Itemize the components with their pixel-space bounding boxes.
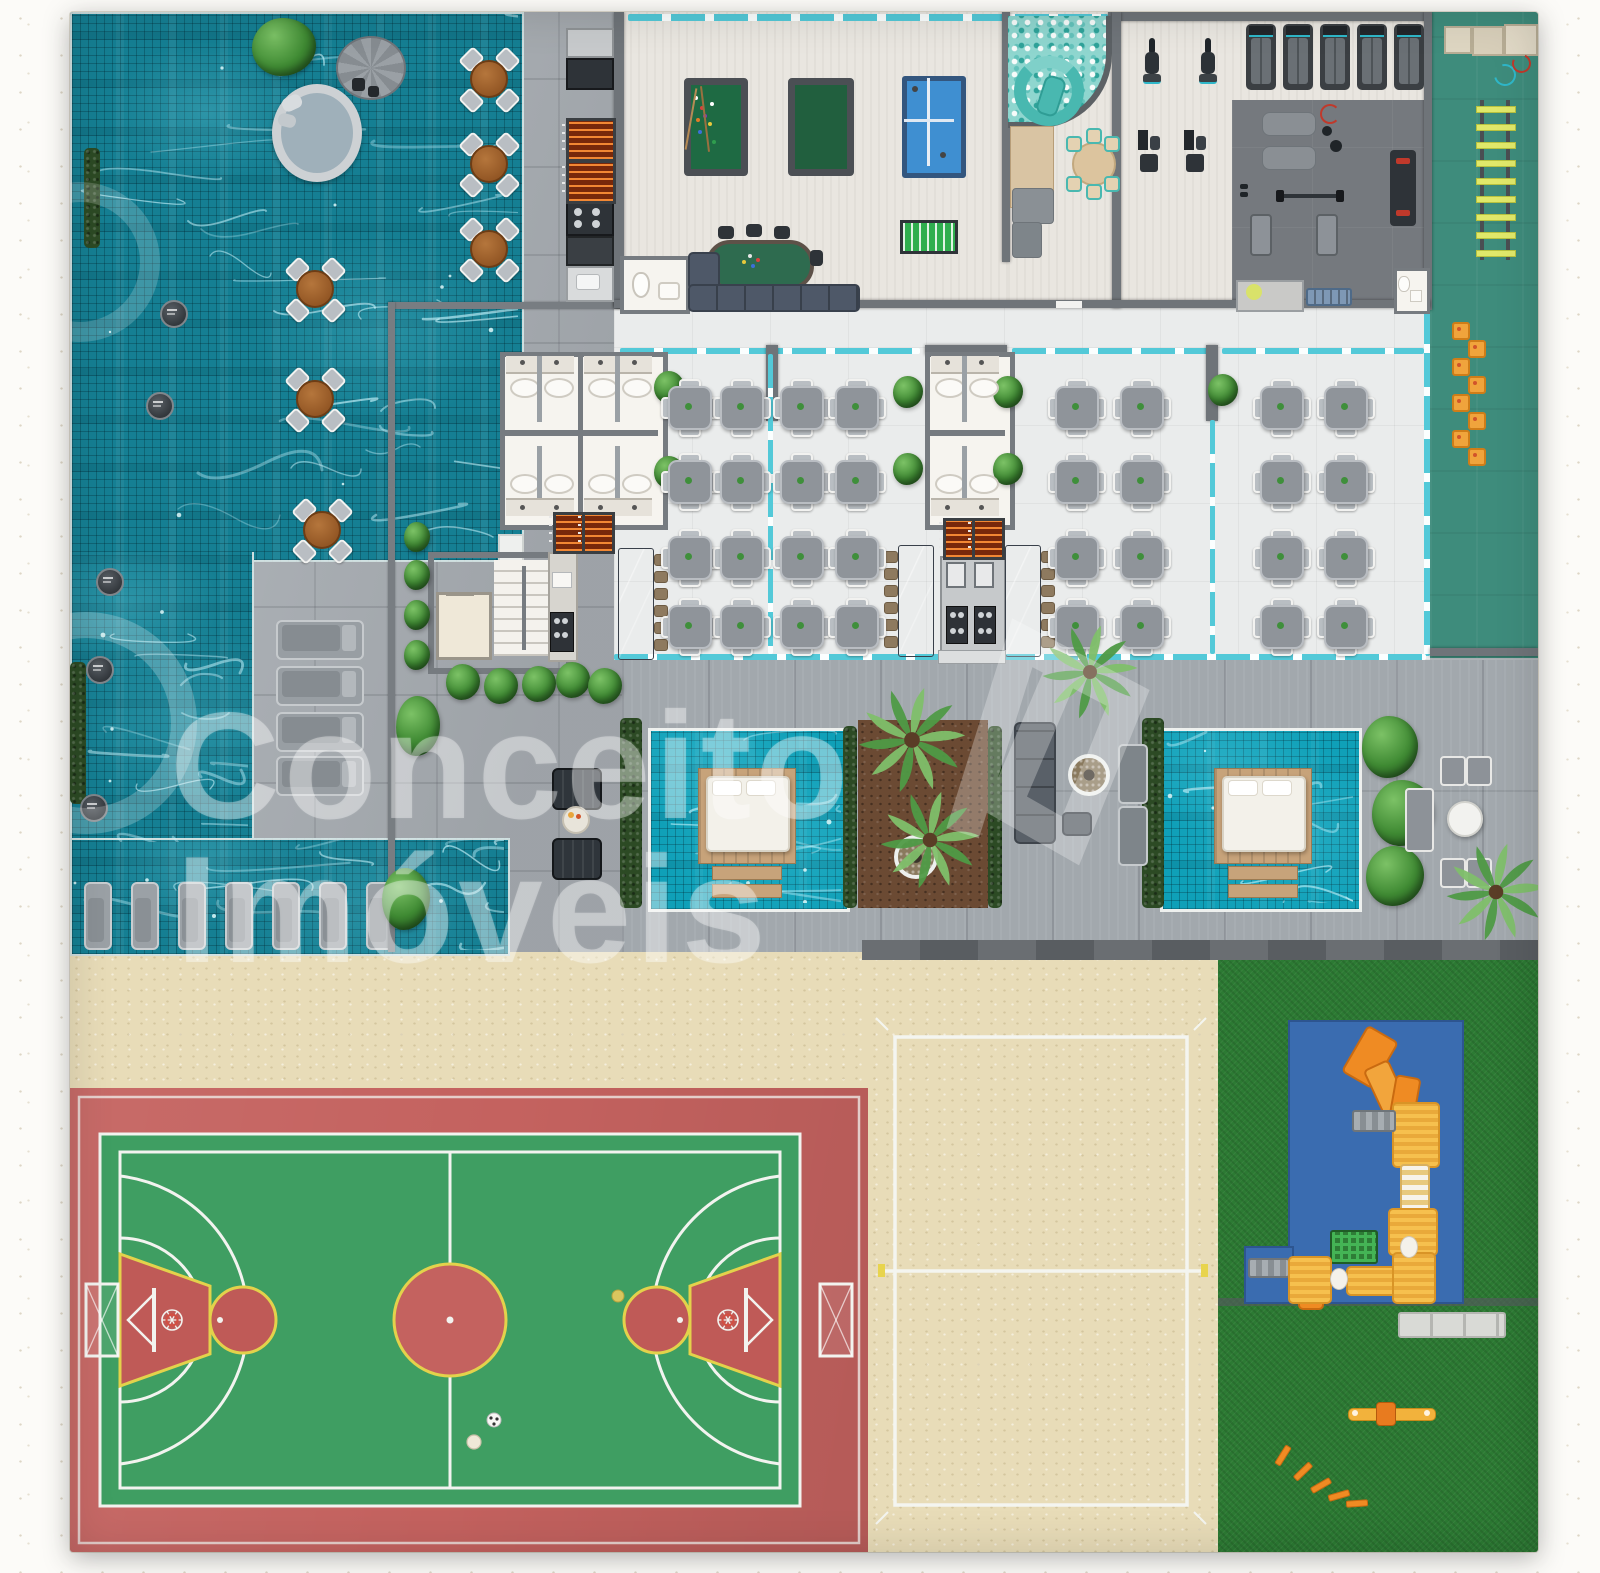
jump-rope xyxy=(1320,104,1340,124)
treadmill-console xyxy=(1397,26,1421,37)
table-centerpiece xyxy=(1341,553,1348,560)
poolside-hedge xyxy=(70,662,86,804)
appliance xyxy=(974,562,994,588)
stepping-pad-dot xyxy=(1473,345,1477,349)
card-table-chair xyxy=(718,226,734,239)
counter-stool xyxy=(1041,602,1055,614)
table-centerpiece xyxy=(1341,403,1348,410)
wash-basin xyxy=(510,474,540,494)
play-dome xyxy=(1330,1268,1348,1290)
kids-soft-block xyxy=(1012,188,1054,224)
counter-stool xyxy=(884,551,898,563)
dumbbell xyxy=(1240,184,1248,189)
wash-basin xyxy=(935,378,965,398)
round-table-top xyxy=(303,511,341,549)
agility-ladder-rung xyxy=(1476,178,1516,185)
daybed-pillow xyxy=(712,780,742,796)
in-pool-lounger-pad xyxy=(182,898,198,942)
table-centerpiece xyxy=(852,553,859,560)
bbq-grill xyxy=(972,518,1005,560)
outdoor-kitchen-fridge xyxy=(566,28,614,58)
stepping-pad-dot xyxy=(1457,399,1461,403)
wash-basin xyxy=(588,474,618,494)
multisport-court xyxy=(70,1088,868,1552)
weight-stack xyxy=(1138,130,1148,150)
in-pool-lounger-pad xyxy=(88,898,104,942)
candle xyxy=(568,812,574,818)
station-seat xyxy=(1196,136,1206,150)
faucet xyxy=(945,360,950,365)
round-table-top xyxy=(470,145,508,183)
stepping-pad xyxy=(1468,412,1486,430)
in-pool-lounger-pad xyxy=(276,898,292,942)
in-pool-lounger-pad xyxy=(135,898,151,942)
agility-ladder-rung xyxy=(1476,106,1516,113)
cooktop-burner xyxy=(986,612,992,618)
garden-soil xyxy=(858,720,988,908)
exercise-mat xyxy=(1262,146,1316,170)
counter-stool xyxy=(1041,585,1055,597)
glass-wall xyxy=(1222,348,1424,354)
counter-stool xyxy=(884,568,898,580)
kids-soft-block xyxy=(1012,222,1042,258)
plyo-box xyxy=(1504,24,1538,56)
cooktop-burner xyxy=(950,628,956,634)
cooktop-burner xyxy=(986,628,992,634)
sofa xyxy=(688,284,860,312)
agility-ladder-rung xyxy=(1476,142,1516,149)
bike-body xyxy=(1145,52,1159,74)
table-centerpiece xyxy=(1072,403,1079,410)
wash-basin xyxy=(658,282,680,300)
stepping-pad xyxy=(1452,358,1470,376)
sun-lounger-pad xyxy=(282,625,340,651)
counter-stool xyxy=(1041,568,1055,580)
patio-chair xyxy=(1466,756,1492,786)
table-centerpiece xyxy=(1277,477,1284,484)
cooktop-burner xyxy=(562,618,568,624)
cooktop xyxy=(974,606,996,644)
sand-strip xyxy=(70,952,868,1088)
counter-stool xyxy=(884,619,898,631)
cable-tower-accent xyxy=(1396,210,1410,216)
stepping-pad-dot xyxy=(1457,435,1461,439)
table-centerpiece xyxy=(737,622,744,629)
table-centerpiece xyxy=(852,477,859,484)
restroom-wall xyxy=(578,430,658,436)
table-centerpiece xyxy=(737,403,744,410)
daybed-pillow xyxy=(746,780,776,796)
round-table-top xyxy=(470,60,508,98)
bbq-grill xyxy=(566,118,616,162)
restroom-wall xyxy=(925,430,1005,436)
agility-ladder-rung xyxy=(1476,214,1516,221)
candle xyxy=(576,814,581,819)
restroom-wall xyxy=(615,356,620,422)
patio-table xyxy=(1447,801,1483,837)
daybed-pillow xyxy=(1228,780,1258,796)
foosball-table xyxy=(900,220,958,254)
cooktop-burner xyxy=(978,612,984,618)
wall-thin xyxy=(388,302,395,952)
side-table xyxy=(562,806,590,834)
patio-chair xyxy=(1440,858,1466,888)
play-ramp xyxy=(1248,1258,1290,1278)
treadmill-console xyxy=(1360,26,1384,37)
kitchen-counter xyxy=(938,650,1006,664)
table-centerpiece xyxy=(852,622,859,629)
sun-lounger-pillow xyxy=(342,761,356,787)
table-centerpiece xyxy=(737,553,744,560)
wash-basin xyxy=(969,474,999,494)
pool-equipment-disk-label xyxy=(153,401,163,403)
lounge-chair xyxy=(1118,806,1148,866)
beach-volleyball-lines xyxy=(868,952,1218,1552)
treadmill-console xyxy=(1323,26,1347,37)
ottoman xyxy=(1062,812,1092,836)
barbell xyxy=(1280,194,1338,198)
pool-equipment-disk-label xyxy=(93,669,101,671)
restroom-counter xyxy=(931,498,999,516)
station-frame xyxy=(1186,154,1204,172)
bbq-grill-handles xyxy=(968,522,971,548)
play-platform xyxy=(1288,1256,1332,1304)
play-bridge xyxy=(1400,1164,1430,1212)
cooktop-burner xyxy=(592,208,600,216)
seesaw-pivot xyxy=(1376,1402,1396,1426)
seesaw-handle xyxy=(1352,1410,1358,1416)
faucet xyxy=(979,360,984,365)
counter-stool xyxy=(884,585,898,597)
bbq-grill xyxy=(582,512,615,554)
door-gap xyxy=(1056,301,1082,308)
amenities-floor-plan: Conceito Imóveis xyxy=(70,12,1538,1552)
outdoor-kitchen-cooktop xyxy=(566,202,614,236)
table-centerpiece xyxy=(1277,622,1284,629)
table-centerpiece xyxy=(685,403,692,410)
card-table xyxy=(706,240,814,290)
treadmill-belt xyxy=(1288,38,1308,84)
wash-basin xyxy=(544,378,574,398)
kids-chair xyxy=(1086,184,1102,200)
climb-net xyxy=(1330,1230,1378,1264)
outdoor-sofa xyxy=(1014,722,1056,844)
seesaw-handle xyxy=(1424,1410,1430,1416)
card-table-chair xyxy=(774,226,790,239)
table-centerpiece xyxy=(1137,477,1144,484)
stability-ball xyxy=(1246,284,1262,300)
pool-equipment-disk-label xyxy=(103,581,111,583)
stepping-pad xyxy=(1468,376,1486,394)
daybed-pillow xyxy=(1262,780,1292,796)
card-table-chair xyxy=(810,250,823,266)
table-centerpiece xyxy=(1277,553,1284,560)
stepping-pad-dot xyxy=(1473,453,1477,457)
table-centerpiece xyxy=(1072,553,1079,560)
faucet xyxy=(520,360,525,365)
barbell-plate xyxy=(1276,190,1284,202)
bbq-grill-handles xyxy=(578,516,581,542)
kettlebell xyxy=(1330,140,1342,152)
sink-basin xyxy=(576,274,600,290)
treadmill-belt xyxy=(1251,38,1271,84)
treadmill-belt xyxy=(1325,38,1345,84)
park-bench xyxy=(1398,1312,1506,1338)
sun-lounger-pad xyxy=(282,671,340,697)
garden-bench xyxy=(1405,788,1434,852)
appliance xyxy=(946,562,966,588)
table-centerpiece xyxy=(1137,553,1144,560)
glass-wall xyxy=(1210,420,1215,654)
deck-stool xyxy=(368,86,379,97)
plyo-box xyxy=(1444,26,1472,54)
wash-basin xyxy=(510,378,540,398)
counter-stool xyxy=(884,602,898,614)
treadmill-console xyxy=(1286,26,1310,37)
pool-equipment-disk-label xyxy=(103,577,113,579)
wash-basin xyxy=(622,378,652,398)
outdoor-kitchen-module xyxy=(566,58,614,90)
stepping-pad-dot xyxy=(1457,327,1461,331)
faucet xyxy=(632,360,637,365)
treadmill-belt xyxy=(1399,38,1419,84)
table-tennis-centerline xyxy=(927,78,930,166)
table-centerpiece xyxy=(1137,622,1144,629)
restroom-wall xyxy=(537,356,542,422)
cable-tower-accent xyxy=(1396,158,1410,164)
kids-chair xyxy=(1104,136,1120,152)
agility-ladder-rung xyxy=(1476,160,1516,167)
wall xyxy=(1424,12,1432,310)
wash-basin xyxy=(935,474,965,494)
plyo-box xyxy=(1472,26,1504,56)
play-ramp xyxy=(1352,1110,1396,1132)
planter-hedge xyxy=(988,726,1002,908)
glass-wall xyxy=(1012,348,1208,354)
stepping-pad xyxy=(1452,394,1470,412)
table-centerpiece xyxy=(852,403,859,410)
workout-bench xyxy=(1250,214,1272,256)
sun-lounger-pillow xyxy=(342,717,356,743)
faucet xyxy=(945,505,950,510)
faucet xyxy=(554,360,559,365)
faucet xyxy=(979,505,984,510)
patio-chair xyxy=(1466,858,1492,888)
agility-ladder-rung xyxy=(1476,250,1516,257)
table-centerpiece xyxy=(797,403,804,410)
cooktop xyxy=(946,606,968,644)
table-centerpiece xyxy=(685,553,692,560)
sun-lounger-pad xyxy=(282,761,340,787)
round-table-top xyxy=(296,380,334,418)
planter-hedge xyxy=(843,726,857,908)
cooktop-burner xyxy=(554,618,560,624)
round-table-top xyxy=(296,270,334,308)
table-tennis-paddle xyxy=(940,152,946,158)
pool-equipment-disk-label xyxy=(87,803,97,805)
agility-ladder-rung xyxy=(1476,196,1516,203)
toilet xyxy=(1398,276,1410,292)
round-table-top xyxy=(470,230,508,268)
table-centerpiece xyxy=(685,477,692,484)
agility-ladder-rung xyxy=(1476,232,1516,239)
card-table-chair xyxy=(746,224,762,237)
cooktop-burner xyxy=(554,632,560,638)
bbq-grill-handles xyxy=(939,522,942,548)
kids-chair xyxy=(1066,176,1082,192)
dumbbell-rack xyxy=(1306,288,1352,306)
table-centerpiece xyxy=(797,477,804,484)
outdoor-kitchen-module xyxy=(566,236,614,266)
wash-basin xyxy=(588,378,618,398)
cabana-bench xyxy=(712,866,782,880)
glass-wall xyxy=(1424,310,1430,656)
wash-basin xyxy=(1410,290,1422,302)
pool-equipment-disk-label xyxy=(167,313,175,315)
stepping-pad-dot xyxy=(1457,363,1461,367)
patio-chair xyxy=(1440,756,1466,786)
wash-basin xyxy=(622,474,652,494)
in-pool-lounger-pad xyxy=(323,898,339,942)
cabana-bench xyxy=(1228,866,1298,880)
dumbbell xyxy=(1240,192,1248,197)
stair-rail xyxy=(522,566,526,650)
cooktop-burner xyxy=(562,632,568,638)
faucet xyxy=(554,505,559,510)
barbell-plate xyxy=(1336,190,1344,202)
cooktop-burner xyxy=(950,612,956,618)
sun-lounger-pillow xyxy=(342,671,356,697)
lounge-chair xyxy=(1118,744,1148,804)
toilet xyxy=(632,272,650,298)
kids-chair xyxy=(1104,176,1120,192)
cooktop-burner xyxy=(574,208,582,216)
counter-table-marble xyxy=(1005,545,1041,657)
play-platform xyxy=(1392,1252,1436,1304)
station-seat xyxy=(1150,136,1160,150)
counter-table-marble xyxy=(618,548,654,660)
treadmill-console xyxy=(1249,26,1273,37)
elevator xyxy=(436,592,492,660)
table-centerpiece xyxy=(1072,622,1079,629)
stepping-pad-dot xyxy=(1473,381,1477,385)
bike-body xyxy=(1201,52,1215,74)
table-centerpiece xyxy=(1072,477,1079,484)
stepping-pad xyxy=(1468,340,1486,358)
table-tennis-paddle xyxy=(912,86,918,92)
deck-stool xyxy=(352,78,365,91)
pool-equipment-disk-label xyxy=(153,405,161,407)
counter-stool xyxy=(884,636,898,648)
bbq-grill-handles xyxy=(562,164,565,192)
fire-pit xyxy=(1068,754,1110,796)
faucet xyxy=(598,505,603,510)
sink-basin xyxy=(552,572,572,588)
card-chips xyxy=(748,254,752,258)
wash-basin xyxy=(969,378,999,398)
play-platform xyxy=(1392,1102,1440,1168)
workout-bench xyxy=(1316,214,1338,256)
bike-base xyxy=(1143,74,1161,84)
play-connector xyxy=(1346,1266,1398,1296)
lounge-chair xyxy=(552,838,602,880)
bbq-grill-handles xyxy=(549,516,552,542)
cooktop-burner xyxy=(958,628,964,634)
lounge-chair xyxy=(552,768,602,810)
stepping-pad xyxy=(1452,430,1470,448)
wall xyxy=(1430,648,1538,656)
counter-stool xyxy=(654,639,668,651)
kettlebell xyxy=(1322,126,1332,136)
bike-base xyxy=(1199,74,1217,84)
table-centerpiece xyxy=(737,477,744,484)
table-tennis-net xyxy=(904,119,954,122)
counter-stool xyxy=(654,571,668,583)
sun-lounger-pad xyxy=(282,717,340,743)
cooktop-burner xyxy=(574,220,582,228)
bbq-grill xyxy=(566,160,616,204)
table-centerpiece xyxy=(797,553,804,560)
treadmill-belt xyxy=(1362,38,1382,84)
pool-equipment-disk-label xyxy=(93,665,103,667)
counter-stool xyxy=(654,588,668,600)
cooktop-burner xyxy=(592,220,600,228)
wall-thin xyxy=(388,302,622,309)
in-pool-lounger-pad xyxy=(229,898,245,942)
kids-chair xyxy=(1066,136,1082,152)
table-centerpiece xyxy=(1137,403,1144,410)
cabana-bench xyxy=(1228,884,1298,898)
exercise-mat xyxy=(1262,112,1316,136)
pool-equipment-disk-label xyxy=(87,807,95,809)
bbq-grill-handles xyxy=(562,122,565,150)
sun-lounger-pillow xyxy=(342,625,356,651)
wall xyxy=(1108,12,1430,21)
agility-ladder-rung xyxy=(1476,124,1516,131)
table-centerpiece xyxy=(1277,403,1284,410)
cooktop-burner xyxy=(958,612,964,618)
faucet xyxy=(520,505,525,510)
table-centerpiece xyxy=(1341,622,1348,629)
faucet xyxy=(632,505,637,510)
faucet xyxy=(598,360,603,365)
cooktop-burner xyxy=(978,628,984,634)
stepping-pad xyxy=(1452,322,1470,340)
play-dome xyxy=(1400,1236,1418,1258)
pool-equipment-disk-label xyxy=(167,309,177,311)
kids-chair xyxy=(1086,128,1102,144)
wash-basin xyxy=(544,474,574,494)
billiards-table xyxy=(788,78,854,176)
stepping-pad xyxy=(1468,448,1486,466)
floor-plan-rendering: Conceito Imóveis xyxy=(0,0,1600,1573)
fire-pit xyxy=(894,835,938,879)
table-centerpiece xyxy=(685,622,692,629)
restroom-wall xyxy=(962,356,967,422)
cabana-hedge xyxy=(620,718,642,908)
elevator-door xyxy=(446,592,474,596)
station-frame xyxy=(1140,154,1158,172)
table-centerpiece xyxy=(797,622,804,629)
poolside-hedge xyxy=(84,148,100,248)
stepping-pad-dot xyxy=(1473,417,1477,421)
table-tennis-table xyxy=(902,76,966,178)
counter-table-marble xyxy=(898,545,934,657)
weight-stack xyxy=(1184,130,1194,150)
restroom-wall xyxy=(500,430,580,436)
table-centerpiece xyxy=(1341,477,1348,484)
cabana-bench xyxy=(712,884,782,898)
